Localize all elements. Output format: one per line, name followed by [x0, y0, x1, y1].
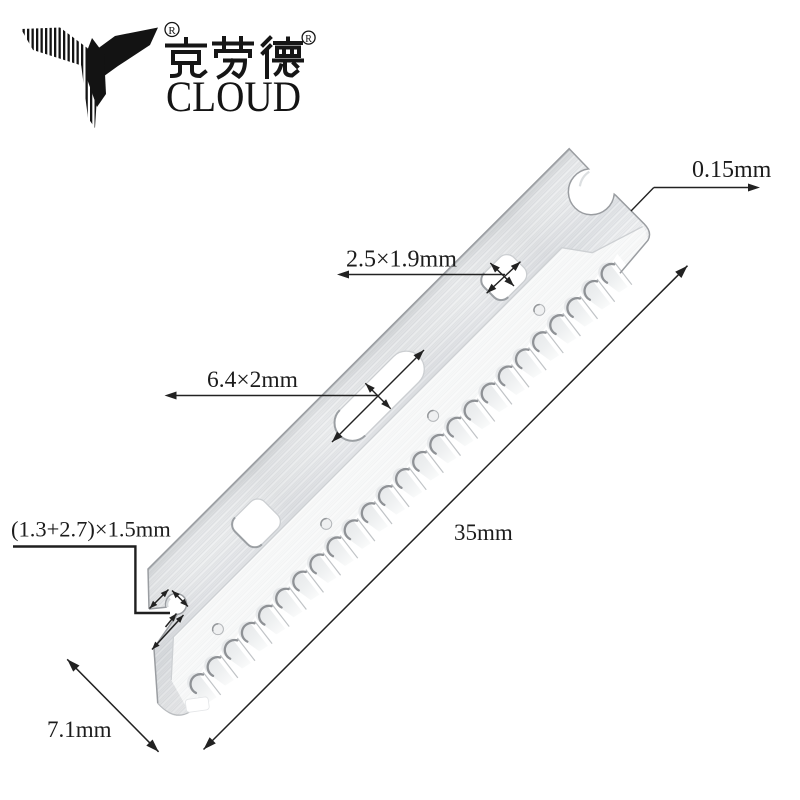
svg-text:2.5×1.9mm: 2.5×1.9mm [346, 247, 457, 273]
svg-text:R: R [305, 34, 312, 45]
svg-text:6.4×2mm: 6.4×2mm [207, 367, 298, 393]
svg-text:0.15mm: 0.15mm [692, 157, 772, 183]
svg-text:CLOUD: CLOUD [166, 74, 301, 121]
svg-text:(1.3+2.7)×1.5mm: (1.3+2.7)×1.5mm [11, 517, 171, 542]
svg-text:7.1mm: 7.1mm [47, 717, 112, 742]
svg-text:35mm: 35mm [454, 520, 513, 545]
svg-text:R: R [168, 25, 176, 37]
